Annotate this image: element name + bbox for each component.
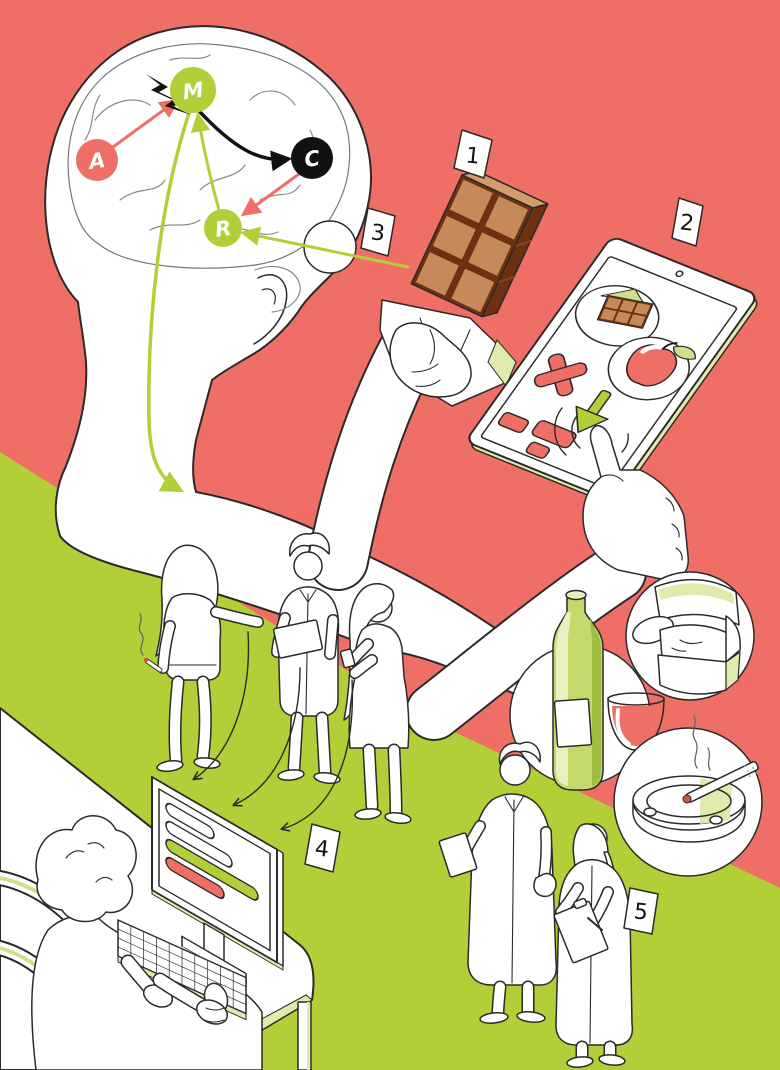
brain-node-R: R (204, 209, 242, 247)
brain-node-C: C (291, 137, 333, 179)
node-R-label: R (213, 216, 232, 242)
tag-4-number: 4 (314, 836, 331, 862)
wine-label (554, 699, 591, 747)
ashtray (633, 776, 745, 842)
tag-5-number: 5 (633, 899, 650, 925)
tag-3-number: 3 (370, 220, 387, 246)
node-M-label: M (181, 78, 205, 105)
tag-3: 3 (361, 208, 395, 256)
tag-2-number: 2 (679, 210, 696, 236)
tag-5: 5 (624, 888, 658, 934)
tag-1-number: 1 (464, 143, 481, 169)
bubble-armchair (626, 572, 754, 700)
tag-4: 4 (305, 824, 340, 872)
illustration-habit-study: A M C R (0, 0, 780, 1070)
brain-node-M: M (170, 67, 216, 113)
brain-node-A: A (76, 139, 118, 181)
